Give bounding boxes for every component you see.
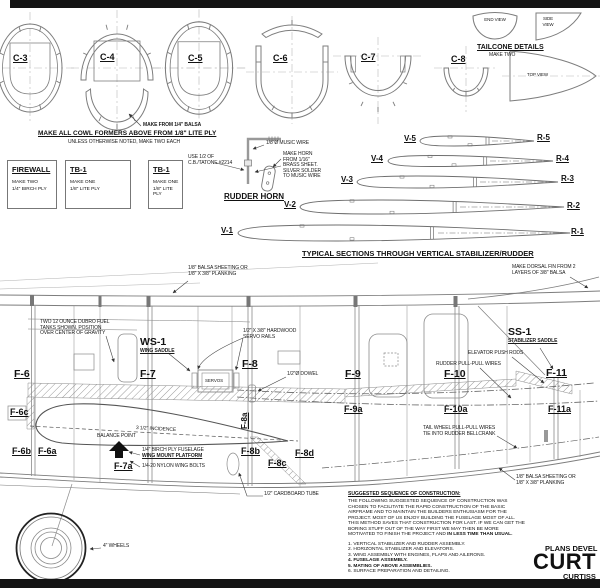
former-label-f6c: F-6c	[10, 408, 29, 417]
section-label-r5: R-5	[537, 134, 550, 142]
cowl-former-c4-drawing	[71, 10, 163, 130]
tailcone-top-view-label: TOP VIEW	[527, 72, 548, 78]
cardboard-tube-note: 1/2" CARDBOARD TUBE	[264, 492, 319, 498]
former-label-f8: F-8	[242, 359, 258, 370]
sections-title: TYPICAL SECTIONS THROUGH VERTICAL STABIL…	[302, 250, 534, 258]
tailcone-end-view-label: END VIEW	[482, 17, 508, 23]
former-label-f11: F-11	[546, 368, 567, 379]
section-label-r4: R-4	[556, 155, 569, 163]
horn-make-note: MAKE HORN FROM 1/16" BRASS SHEET. SILVER…	[283, 152, 323, 180]
former-label-f8c: F-8c	[268, 459, 287, 468]
elevator-pushrod-note: ELEVATOR PUSH RODS	[468, 351, 523, 357]
former-label-f11a: F-11a	[548, 405, 571, 414]
tb1-title-2: TB-1	[153, 165, 182, 174]
ss1-sub-label: STABILIZER SADDLE	[508, 339, 557, 345]
servo-rails-note: 1/2" X 3/8" HARDWOOD SERVO RAILS	[243, 329, 299, 340]
balsa-note-leader	[129, 114, 141, 126]
cowl-sub-note: UNLESS OTHERWISE NOTED, MAKE TWO EACH	[68, 140, 180, 146]
tatone-note: USE 1/2 OF C.B./TATONE #2214	[188, 155, 236, 166]
plan-sheet: C-3 C-4 C-5 C-6 C-7 C-8 MAKE FROM 1/4" B…	[0, 0, 600, 588]
servos-label: SERVOS	[205, 378, 223, 384]
former-label-f10a: F-10a	[444, 405, 468, 414]
former-label-f10: F-10	[444, 369, 466, 380]
former-label-f8b: F-8b	[241, 447, 260, 456]
section-label-v1: V-1	[221, 227, 233, 235]
section-label-r2: R-2	[567, 202, 580, 210]
sequence-paragraph: THE FOLLOWING SUGGESTED SEQUENCE OF CONS…	[348, 499, 526, 538]
former-label-f7: F-7	[140, 369, 156, 380]
wing-bolts-note: 1/4-20 NYLON WING BOLTS	[142, 464, 205, 470]
cowl-former-c7-drawing	[333, 37, 423, 124]
wing-platform-note-line2: WING MOUNT PLATFORM	[142, 453, 202, 459]
tb1-line1-1: MAKE ONE	[70, 180, 130, 185]
firewall-line2: 1/4" BIRCH PLY	[12, 187, 56, 192]
cowl-balsa-note: MAKE FROM 1/4" BALSA	[143, 123, 201, 129]
cowl-label-c3: C-3	[13, 54, 28, 63]
title-block-main: CURT	[533, 551, 596, 573]
balance-point-label: BALANCE POINT	[97, 434, 136, 440]
wheel-drawing	[17, 484, 86, 583]
cowl-former-c6-drawing	[246, 16, 338, 124]
rudder-horn-title: RUDDER HORN	[224, 193, 284, 201]
music-wire-note: 1/8"Ø MUSIC WIRE	[266, 141, 309, 147]
title-block-sub: CURTISS	[563, 572, 596, 581]
former-label-f6: F-6	[14, 369, 30, 380]
tailcone-side-view-label: SIDE VIEW	[537, 16, 559, 27]
cowl-label-c6: C-6	[273, 54, 288, 63]
tailcone-sub: MAKE TWO	[489, 53, 515, 59]
firewall-line1: MAKE TWO	[12, 180, 56, 185]
cowl-label-c8: C-8	[451, 55, 466, 64]
firewall-title: FIREWALL	[12, 165, 56, 174]
tb1-box-2: TB-1 MAKE ONE 1/8" LITE PLY	[148, 160, 183, 209]
bottom-border-bar	[0, 579, 600, 588]
tb1-line2-1: 1/8" LITE PLY	[70, 187, 130, 192]
ws1-sub-label: WING SADDLE	[140, 349, 174, 355]
former-label-f6a: F-6a	[38, 447, 57, 456]
sheeting-note-top: 1/8" BALSA SHEETING OR 1/8" X 3/8" PLANK…	[188, 266, 250, 277]
sequence-heading: SUGGESTED SEQUENCE OF CONSTRUCTION:	[348, 491, 526, 497]
cowl-label-c4: C-4	[100, 53, 115, 62]
former-label-f9a: F-9a	[344, 405, 363, 414]
former-label-f8a: F-8a	[241, 413, 249, 429]
section-label-r3: R-3	[561, 175, 574, 183]
tb1-line1-2: MAKE ONE	[153, 180, 182, 185]
former-label-f7a: F-7a	[114, 462, 133, 471]
dorsal-fin-note: MAKE DORSAL FIN FROM 2 LAYERS OF 3/8" BA…	[512, 265, 576, 276]
balance-point-arrow	[109, 441, 129, 458]
rudder-wires-note: RUDDER PULL-PULL WIRES	[436, 362, 501, 368]
sequence-items: 1. VERTICAL STABILIZER AND RUDDER ASSEMB…	[348, 542, 526, 575]
cowl-former-c5-drawing	[153, 9, 245, 127]
tb1-box-1: TB-1 MAKE ONE 1/8" LITE PLY	[65, 160, 131, 209]
construction-sequence: SUGGESTED SEQUENCE OF CONSTRUCTION: THE …	[348, 491, 526, 575]
top-border-bar	[10, 0, 600, 8]
sheeting-note-bottom: 1/8" BALSA SHEETING OR 1/8" X 3/8" PLANK…	[516, 475, 578, 486]
tb1-title-1: TB-1	[70, 165, 130, 174]
cowl-label-c5: C-5	[188, 54, 203, 63]
tailcone-title: TAILCONE DETAILS	[477, 44, 544, 51]
section-label-v5: V-5	[404, 135, 416, 143]
cowl-former-c3-drawing	[0, 12, 74, 124]
wing-platform-note: 1/4" BIRCH PLY FUSELAGE WING MOUNT PLATF…	[142, 448, 212, 459]
sequence-paragraph-bold: IN LESS TIME THAN USUAL.	[447, 532, 512, 537]
former-label-f9: F-9	[345, 369, 361, 380]
dowel-note: 1/2"Ø DOWEL	[287, 372, 318, 378]
section-label-v3: V-3	[341, 176, 353, 184]
former-label-f6b: F-6b	[12, 447, 31, 456]
firewall-box: FIREWALL MAKE TWO 1/4" BIRCH PLY	[7, 160, 57, 209]
tailwheel-note: TAIL WHEEL PULL-PULL WIRES TIE INTO RUDD…	[423, 426, 497, 437]
sequence-item-6: 6. SURFACE PREPARATION AND DETAILING.	[348, 569, 526, 575]
fuel-tank-note: TWO 12 OUNCE DUBRO FUEL TANKS SHOWN. POS…	[40, 320, 110, 337]
section-label-r1: R-1	[571, 228, 584, 236]
former-label-f8d: F-8d	[295, 449, 314, 458]
section-label-v2: V-2	[284, 201, 296, 209]
wheels-note: 4" WHEELS	[103, 544, 129, 550]
cowl-label-c7: C-7	[361, 53, 376, 62]
section-label-v4: V-4	[371, 155, 383, 163]
ws1-label: WS-1	[140, 337, 166, 348]
tb1-line2-2: 1/8" LITE PLY	[153, 187, 182, 197]
ss1-label: SS-1	[508, 327, 531, 338]
cowl-main-note: MAKE ALL COWL FORMERS ABOVE FROM 1/8" LI…	[38, 131, 216, 138]
